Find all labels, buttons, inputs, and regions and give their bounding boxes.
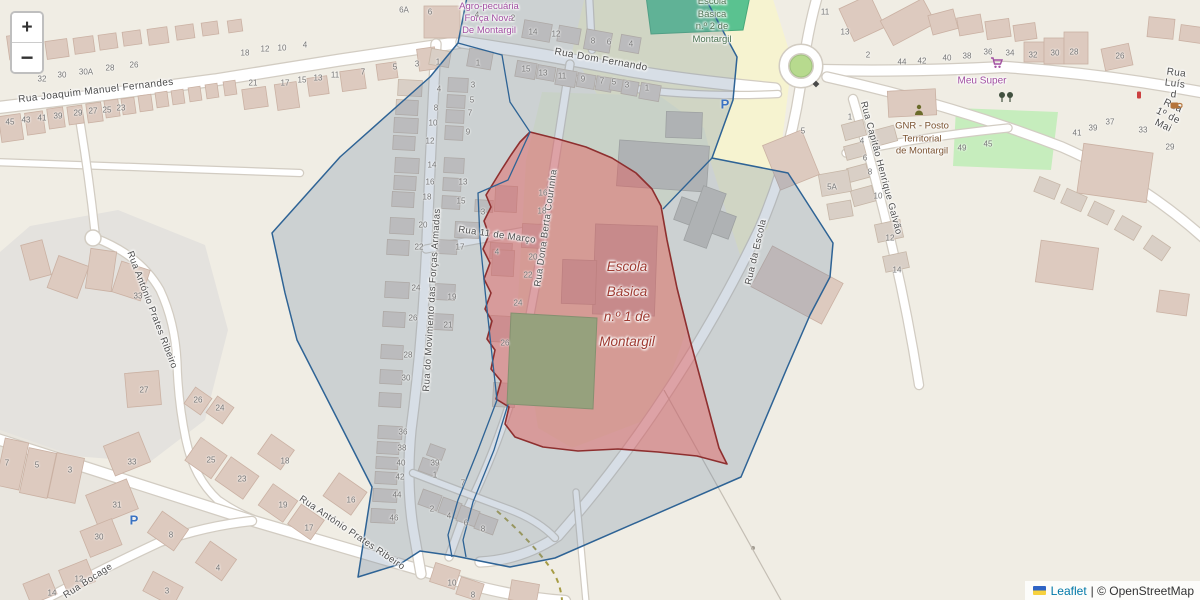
building xyxy=(1147,17,1175,40)
building xyxy=(25,111,46,135)
building xyxy=(205,83,219,99)
building xyxy=(1077,143,1153,202)
building xyxy=(274,82,299,111)
building xyxy=(201,21,219,36)
building xyxy=(1157,290,1190,316)
attribution-bar: Leaflet | © OpenStreetMap xyxy=(1025,581,1200,600)
building xyxy=(86,102,103,123)
building xyxy=(307,76,329,97)
building xyxy=(138,94,153,112)
building xyxy=(1024,42,1044,62)
building xyxy=(98,33,118,50)
building xyxy=(121,97,136,115)
building xyxy=(45,39,69,60)
building xyxy=(1064,32,1088,64)
zoom-out-button[interactable]: − xyxy=(12,43,42,72)
building xyxy=(67,105,84,125)
building xyxy=(424,6,460,38)
building xyxy=(1035,240,1098,290)
ukraine-flag-icon xyxy=(1033,586,1046,595)
building xyxy=(1013,23,1037,42)
building xyxy=(957,14,984,36)
building xyxy=(0,114,24,143)
building xyxy=(985,18,1011,39)
building xyxy=(376,62,398,81)
copyright-text[interactable]: | © OpenStreetMap xyxy=(1091,584,1194,598)
map-tiles xyxy=(0,0,1200,600)
building xyxy=(818,170,851,197)
building xyxy=(340,68,367,91)
building xyxy=(104,99,120,118)
sports-field xyxy=(507,313,597,409)
building xyxy=(223,80,237,96)
building xyxy=(125,371,162,408)
leaflet-link[interactable]: Leaflet xyxy=(1051,584,1087,598)
building xyxy=(1044,38,1064,64)
building xyxy=(122,30,142,46)
building xyxy=(73,36,95,55)
building xyxy=(1179,25,1200,44)
building xyxy=(188,86,202,102)
cul-de-sac xyxy=(85,230,101,246)
roundabout-center xyxy=(790,55,812,77)
building xyxy=(155,91,169,108)
building xyxy=(887,89,936,117)
building xyxy=(227,19,243,33)
building xyxy=(147,27,169,46)
zoom-control: + − xyxy=(10,11,44,74)
zoom-in-button[interactable]: + xyxy=(12,13,42,43)
map-canvas[interactable]: Rua Joaquim Manuel FernandesRua Dom Fern… xyxy=(0,0,1200,600)
building xyxy=(242,86,269,109)
building xyxy=(47,107,66,129)
building xyxy=(175,24,195,40)
building xyxy=(171,89,185,105)
building xyxy=(85,248,116,291)
